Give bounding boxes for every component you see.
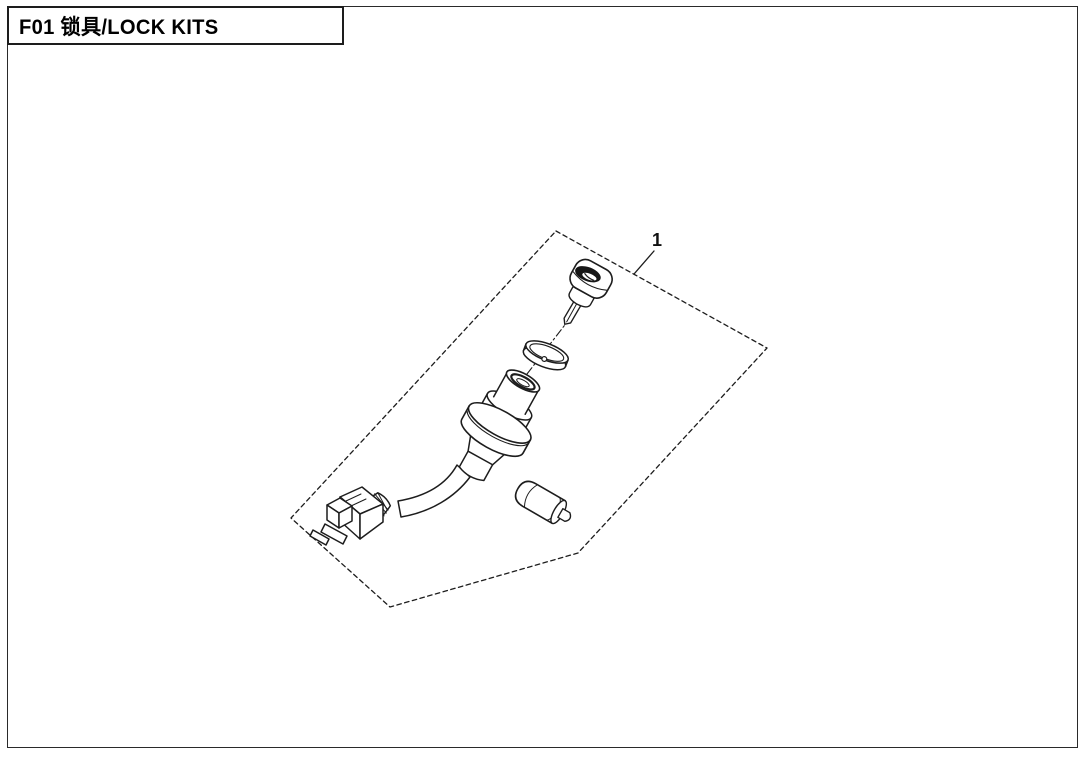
lock-ring-washer (521, 336, 571, 374)
parts-catalog-page: F01 锁具/LOCK KITS (0, 0, 1090, 760)
part-callout-label: 1 (652, 230, 672, 251)
ignition-key (548, 256, 616, 335)
lock-kit-exploded-illustration (0, 0, 1090, 760)
wiring-cable (398, 465, 470, 517)
cable-connector (310, 487, 383, 545)
lock-barrel (511, 477, 576, 530)
callout-leader-line (634, 251, 654, 274)
